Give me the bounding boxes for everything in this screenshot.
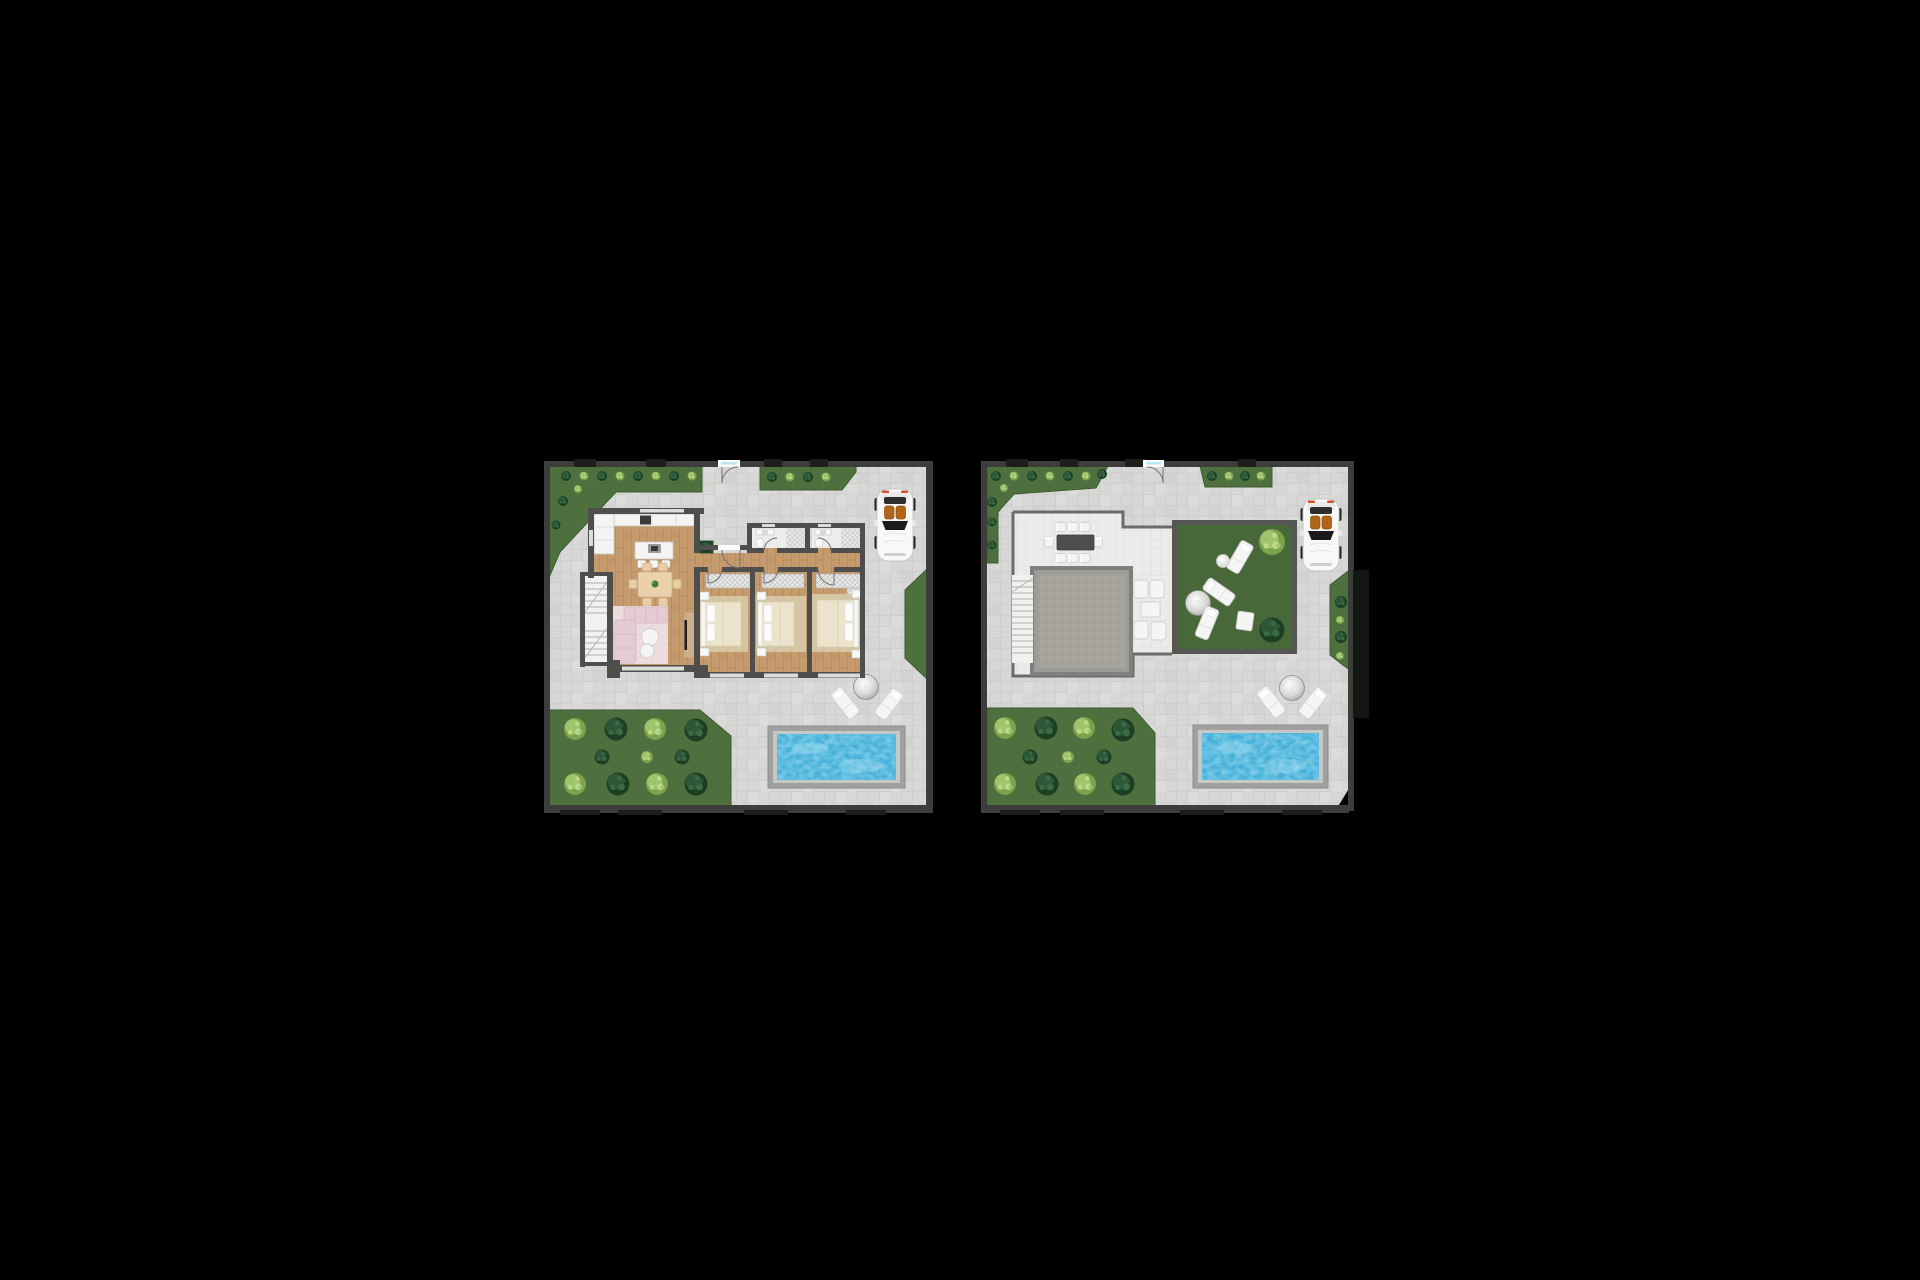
kitchen-window (589, 530, 593, 546)
double-bed (758, 602, 794, 646)
toilet (756, 538, 764, 548)
bedroom-window (710, 674, 744, 678)
armchair (1134, 580, 1148, 598)
kitchen-cabinets (594, 514, 614, 554)
bedroom-1 (698, 574, 750, 656)
car (1300, 499, 1342, 571)
bedroom-2 (756, 574, 806, 656)
armchair (1151, 622, 1166, 640)
shrub (595, 750, 610, 765)
wardrobe (762, 574, 804, 588)
roof-terrace-deck (1012, 512, 1297, 676)
sofa-chaise (614, 620, 636, 663)
staircase (1012, 575, 1033, 663)
swimming-pool (768, 726, 905, 788)
planting-strip-top-right (760, 466, 856, 490)
canvas (0, 0, 1920, 1280)
kitchen-window (640, 509, 684, 513)
coffee-table (642, 629, 659, 646)
side-table (1141, 602, 1160, 617)
garden-bottom-left (987, 708, 1155, 806)
bathroom-window (762, 524, 775, 527)
square-pouf (1236, 611, 1254, 631)
skylight (1030, 566, 1133, 676)
shrub (685, 719, 708, 742)
shrub (994, 717, 1016, 739)
tv (685, 620, 688, 650)
shrub (1074, 773, 1096, 795)
floor-plans-image (0, 0, 1920, 1280)
lawn-shrub (1259, 529, 1285, 555)
nightstand (757, 592, 766, 600)
planting-strip-top-right (1200, 466, 1272, 487)
ball-pouf (1217, 555, 1230, 568)
bedroom-window (764, 674, 798, 678)
roof-terrace-plan (981, 459, 1369, 815)
shrub (1112, 719, 1135, 742)
shrub (1097, 750, 1112, 765)
wardrobe (706, 574, 750, 588)
car (874, 489, 916, 561)
shrub (646, 773, 668, 795)
lawn-shrub (1260, 618, 1285, 643)
round-tree (1280, 676, 1305, 701)
round-tree (854, 675, 879, 700)
shrub (564, 718, 586, 740)
shrub (685, 773, 708, 796)
garden-bottom-left (548, 710, 731, 806)
sliding-door (622, 667, 684, 671)
shrub (994, 773, 1016, 795)
shrub (1035, 717, 1058, 740)
cooktop (640, 516, 651, 525)
shrub (1062, 751, 1074, 763)
nightstand (700, 648, 709, 656)
nightstand (757, 648, 766, 656)
table-plant (652, 581, 659, 588)
bedroom-window (818, 674, 860, 678)
bathroom-window (818, 524, 831, 527)
nightstand (852, 590, 861, 598)
ground-floor-plan (544, 459, 933, 815)
shrub (644, 718, 666, 740)
swimming-pool (1193, 725, 1328, 788)
side-hedge (1353, 570, 1369, 718)
dining-table (1057, 535, 1094, 550)
bedroom-3 (812, 574, 862, 658)
shrub (605, 718, 628, 741)
shrub (1036, 773, 1059, 796)
shrub (675, 750, 690, 765)
shrub (1112, 773, 1135, 796)
shrub (641, 751, 653, 763)
nightstand (700, 592, 709, 600)
shrub (607, 773, 630, 796)
shrub (564, 773, 586, 795)
shrub (1073, 717, 1095, 739)
nightstand (852, 650, 861, 658)
staircase (585, 575, 607, 662)
front-door (718, 545, 740, 550)
shrub (1023, 750, 1038, 765)
armchair (1150, 580, 1164, 598)
armchair (1134, 621, 1148, 639)
coffee-table (640, 644, 654, 658)
toilet (815, 538, 823, 548)
